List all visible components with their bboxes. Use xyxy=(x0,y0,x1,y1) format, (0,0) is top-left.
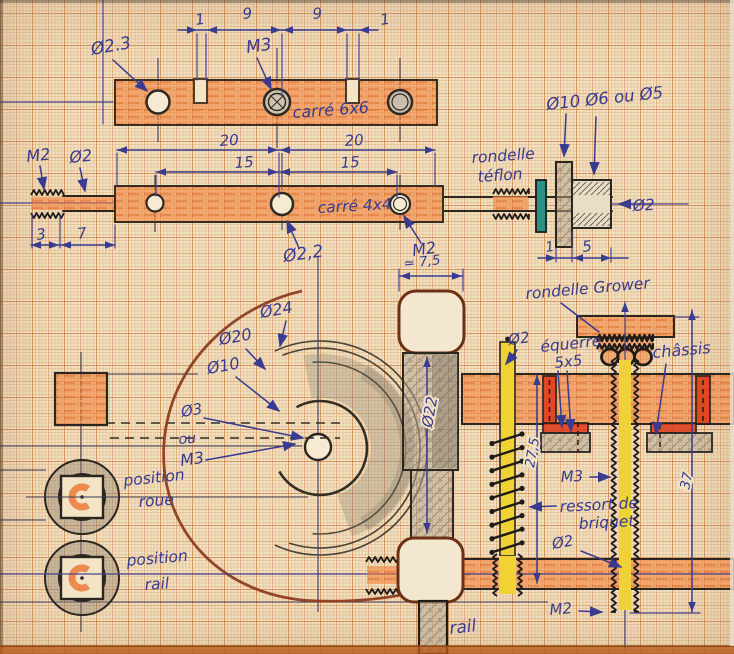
dim-7: 7 xyxy=(76,224,88,243)
axle-rod xyxy=(63,196,115,211)
dim-wheel-width: ≃ 7,5 xyxy=(399,252,463,291)
dim-20-right: 20 xyxy=(344,131,364,150)
teflon-pulley-assembly: Ø10 Ø6 ou Ø5 rondelle téflon Ø2 1 5 xyxy=(471,83,688,262)
axle-thread-right xyxy=(493,189,529,219)
dim-1-right: 1 xyxy=(379,10,391,29)
hole-middle-threaded xyxy=(264,89,290,115)
dim-3: 3 xyxy=(35,225,47,244)
label-axle-dia: Ø2 xyxy=(631,196,655,215)
label-dia-options: Ø10 Ø6 ou Ø5 xyxy=(544,83,664,114)
washer-position-rail xyxy=(45,541,119,615)
teflon-washer xyxy=(536,180,546,232)
square-bar-section xyxy=(55,373,107,425)
axle-thread-left xyxy=(31,190,64,218)
label-position-roue-2: roue xyxy=(138,491,174,511)
label-d3: Ø3 xyxy=(179,400,204,422)
hole-right xyxy=(388,90,412,114)
tire-bottom xyxy=(398,538,463,602)
dim-20-left: 20 xyxy=(219,131,239,150)
dim-9-right: 9 xyxy=(312,4,323,23)
position-labels: position roue position rail xyxy=(122,466,189,594)
label-position-rail-2: rail xyxy=(144,574,170,594)
tire-top xyxy=(399,291,464,353)
label-thread-m2: M2 xyxy=(549,599,573,619)
dim-width-value: ≃ 7,5 xyxy=(403,252,442,272)
label-d20: Ø20 xyxy=(216,325,253,350)
dim-1-left: 1 xyxy=(194,10,206,29)
wheel-front-view xyxy=(55,341,427,555)
dim-body: 5 xyxy=(581,237,593,256)
bar-6x6-top-view: 1 9 9 1 Ø2.3 M3 carré 6x6 xyxy=(88,4,437,148)
dim-27-5-value: 27,5 xyxy=(522,436,543,468)
label-position-rail-1: position xyxy=(125,547,189,570)
hole-middle xyxy=(271,193,293,215)
label-equerre-size: 5x5 xyxy=(554,351,584,372)
dim-15-left: 15 xyxy=(234,153,254,172)
label-position-roue-1: position xyxy=(122,466,186,490)
axle-position-washers xyxy=(45,460,119,615)
notch-left xyxy=(194,79,207,103)
technical-drawing: 1 9 9 1 Ø2.3 M3 carré 6x6 xyxy=(0,0,734,654)
label-teflon: téflon xyxy=(477,165,523,186)
dim-15-right: 15 xyxy=(340,153,360,172)
label-rondelle: rondelle xyxy=(471,145,535,167)
dim-37-value: 37 xyxy=(677,470,696,491)
label-rondelle-grower: rondelle Grower xyxy=(525,274,652,303)
label-thread-m2-left: M2 xyxy=(25,145,51,166)
label-spring-2: briquet xyxy=(578,512,636,533)
hole-left xyxy=(147,195,164,212)
hole-right xyxy=(390,194,410,214)
label-rail: rail xyxy=(448,616,477,639)
label-dia-2: Ø2 xyxy=(67,146,93,167)
dim-flange: 1 xyxy=(544,239,555,256)
label-hole-dia: Ø2.3 xyxy=(88,33,132,60)
bushing-flange xyxy=(556,162,572,247)
dims-pulley: 1 5 xyxy=(538,232,628,262)
graph-paper-sheet: 1 9 9 1 Ø2.3 M3 carré 6x6 xyxy=(0,0,734,654)
label-d10: Ø10 xyxy=(204,354,241,379)
wheel-side-view xyxy=(398,291,464,602)
label-rod-dia: Ø2 xyxy=(506,328,531,349)
label-chassis: châssis xyxy=(652,338,712,362)
label-ou: ou xyxy=(178,431,197,448)
chassis-plate-left xyxy=(541,433,590,452)
dim-9-left: 9 xyxy=(242,4,253,23)
hub-column xyxy=(411,470,453,538)
label-d24: Ø24 xyxy=(257,298,294,323)
chassis-plate-right xyxy=(647,433,712,452)
label-spring-rod-dia: Ø2 xyxy=(550,532,575,554)
hole-left xyxy=(147,91,170,114)
label-thread-m3: M3 xyxy=(560,467,583,486)
label-thread-m3: M3 xyxy=(245,35,273,58)
